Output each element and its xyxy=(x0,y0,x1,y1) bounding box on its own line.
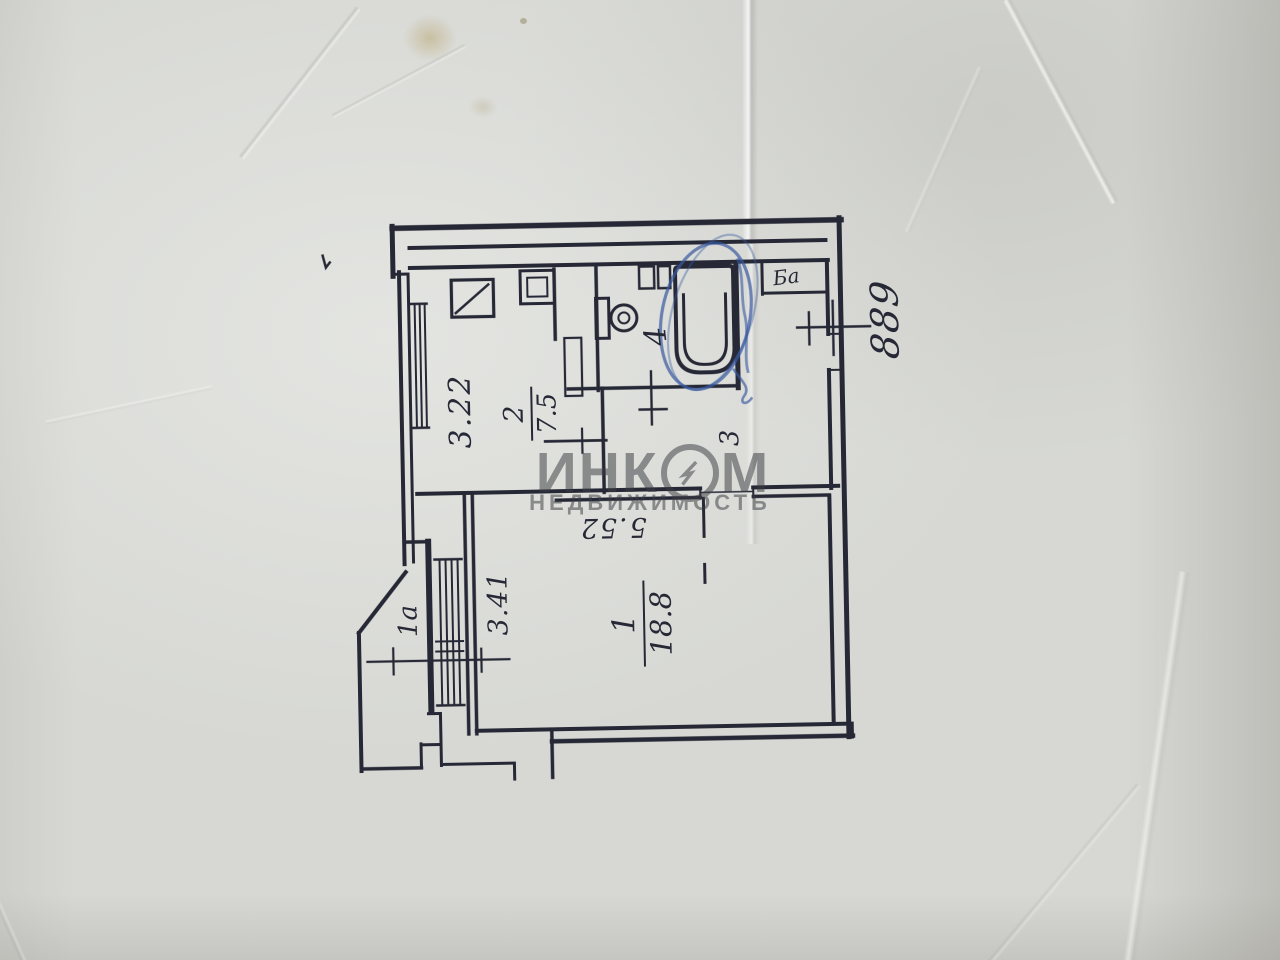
toilet xyxy=(596,298,638,339)
kitchen-sink xyxy=(520,270,555,304)
balcony-label: 1а xyxy=(393,605,424,638)
closet-label: Ба xyxy=(771,263,800,290)
bathroom-room-number: 4 xyxy=(638,325,675,348)
stray-ink-mark xyxy=(323,256,330,268)
floor-plan-drawing: 3.22 2 7.5 4 3 5.52 1 18.8 3.41 1а Ба 88… xyxy=(0,0,1280,960)
kitchen-room-number: 2 xyxy=(500,387,529,442)
living-room-area: 18.8 xyxy=(646,580,677,667)
kitchen-stove xyxy=(451,279,494,317)
inventory-number: 889 xyxy=(862,276,908,361)
kitchen-room-label: 2 7.5 xyxy=(500,386,561,441)
blue-pen-annotation xyxy=(646,223,778,405)
vent-shafts xyxy=(639,266,670,289)
floor-plan-photo: 3.22 2 7.5 4 3 5.52 1 18.8 3.41 1а Ба 88… xyxy=(0,0,1280,960)
room-door-swing xyxy=(703,498,704,536)
bathtub xyxy=(675,266,735,373)
hallway-width-dimension: 5.52 xyxy=(579,511,648,543)
living-room-label: 1 18.8 xyxy=(608,580,677,667)
kitchen-width-dimension: 3.22 xyxy=(442,373,478,448)
balcony-width-dimension: 3.41 xyxy=(482,571,514,636)
hallway-room-number: 3 xyxy=(715,429,745,446)
kitchen-room-area: 7.5 xyxy=(534,386,562,440)
living-room-number: 1 xyxy=(608,581,641,668)
